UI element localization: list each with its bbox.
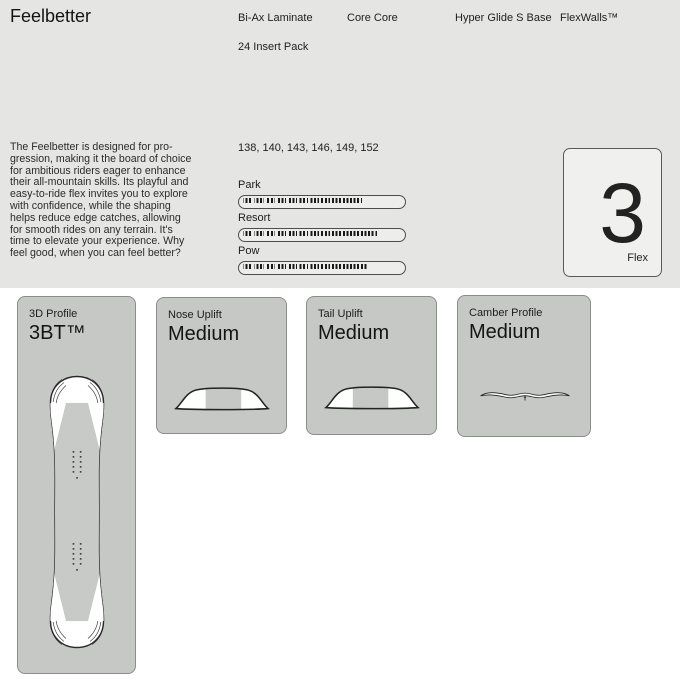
card-camber-profile-label: Camber Profile [469, 307, 542, 319]
card-camber-profile: Camber Profile Medium [457, 295, 591, 437]
flex-rating-box: 3 Flex [563, 148, 662, 277]
card-nose-uplift: Nose Uplift Medium [156, 297, 287, 434]
camber-profile-icon [478, 384, 572, 406]
rating-pow-fill [242, 264, 368, 269]
spec-section: Feelbetter Bi-Ax Laminate Core Core Hype… [0, 0, 680, 288]
camber-height-marker [524, 396, 526, 401]
product-description: The Feelbetter is designed for pro- gres… [10, 142, 235, 260]
feature-laminate: Bi-Ax Laminate [238, 12, 313, 24]
rating-park-fill [242, 198, 362, 203]
tail-uplift-icon [324, 379, 420, 415]
card-3d-profile: 3D Profile 3BT™ [17, 296, 136, 674]
rating-pow-bar [238, 261, 406, 275]
rating-resort-bar [238, 228, 406, 242]
flex-rating-value: 3 [599, 171, 644, 255]
rating-pow-label: Pow [238, 245, 404, 257]
card-3d-profile-value: 3BT™ [29, 322, 86, 345]
card-3d-profile-label: 3D Profile [29, 308, 77, 320]
rating-resort-label: Resort [238, 212, 404, 224]
rating-park-label: Park [238, 179, 404, 191]
nose-uplift-icon [174, 380, 270, 416]
feature-flexwalls: FlexWalls™ [560, 12, 618, 24]
card-tail-uplift-label: Tail Uplift [318, 308, 363, 320]
rating-park: Park [238, 179, 404, 209]
card-nose-uplift-value: Medium [168, 323, 239, 346]
rating-resort: Resort [238, 212, 404, 242]
page-title: Feelbetter [10, 6, 91, 27]
card-tail-uplift: Tail Uplift Medium [306, 296, 437, 435]
card-camber-profile-value: Medium [469, 321, 540, 344]
card-nose-uplift-label: Nose Uplift [168, 309, 222, 321]
rating-pow: Pow [238, 245, 404, 275]
board-topview-icon [47, 375, 107, 649]
size-list: 138, 140, 143, 146, 149, 152 [238, 142, 379, 154]
flex-rating-label: Flex [627, 252, 648, 264]
feature-base: Hyper Glide S Base [455, 12, 552, 24]
card-tail-uplift-value: Medium [318, 322, 389, 345]
feature-insert-pack: 24 Insert Pack [238, 41, 308, 53]
rating-resort-fill [242, 231, 378, 236]
rating-park-bar [238, 195, 406, 209]
feature-core: Core Core [347, 12, 398, 24]
